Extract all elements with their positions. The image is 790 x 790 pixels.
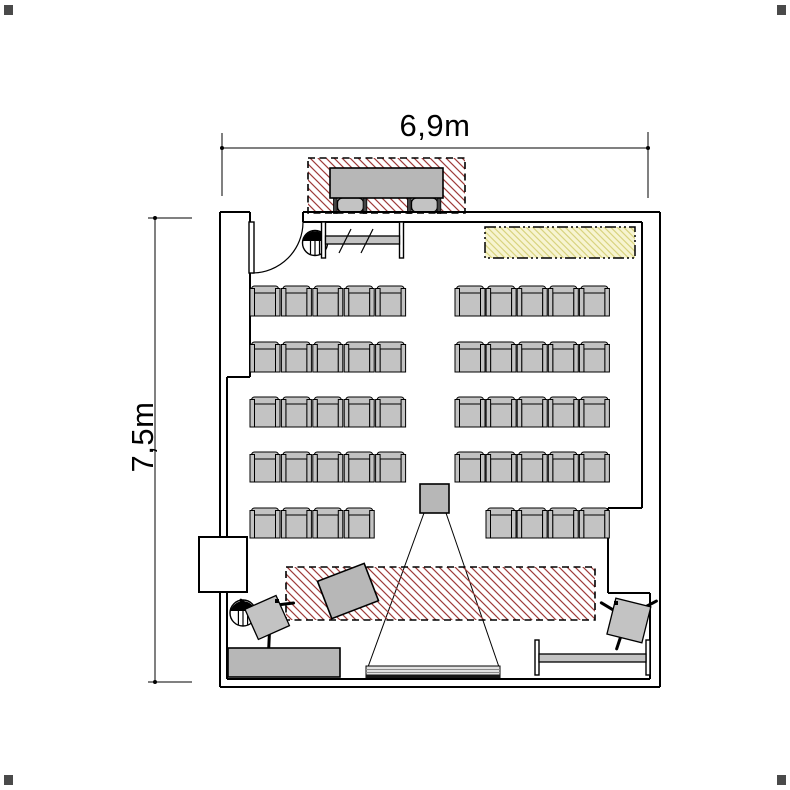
seat <box>313 452 343 482</box>
seat <box>548 286 578 316</box>
seat <box>344 508 374 538</box>
seat <box>548 342 578 372</box>
seat <box>455 286 485 316</box>
coat-rail <box>322 222 404 258</box>
seat <box>344 286 374 316</box>
seat <box>313 286 343 316</box>
seat <box>313 397 343 427</box>
seat <box>579 508 609 538</box>
seat <box>250 397 280 427</box>
seat <box>281 342 311 372</box>
seat <box>376 452 406 482</box>
seat <box>281 286 311 316</box>
entrance-door <box>249 222 303 273</box>
seat <box>548 508 578 538</box>
seat <box>455 342 485 372</box>
seat <box>344 397 374 427</box>
seat <box>548 397 578 427</box>
seat <box>344 452 374 482</box>
seat <box>376 286 406 316</box>
side-table <box>535 640 650 675</box>
seat <box>313 508 343 538</box>
seat <box>455 397 485 427</box>
seat <box>486 397 516 427</box>
side-marked-zone <box>485 227 635 258</box>
seat <box>250 286 280 316</box>
lecturer-table <box>330 168 443 198</box>
wall-pilaster <box>199 537 247 592</box>
seat <box>250 508 280 538</box>
door-leaf <box>249 222 254 273</box>
seat <box>579 397 609 427</box>
seat <box>486 342 516 372</box>
seat <box>250 342 280 372</box>
seat <box>250 452 280 482</box>
seat <box>281 397 311 427</box>
seat <box>486 452 516 482</box>
seat <box>313 342 343 372</box>
seat <box>344 342 374 372</box>
seat <box>579 452 609 482</box>
seat <box>517 452 547 482</box>
seat <box>281 452 311 482</box>
seat <box>517 342 547 372</box>
projection-screen <box>366 666 500 678</box>
sideboard-cabinet <box>228 648 340 677</box>
seat <box>517 286 547 316</box>
lecturer-chair <box>408 197 441 214</box>
seat <box>517 397 547 427</box>
seat <box>376 397 406 427</box>
dimension-label-height: 7,5m <box>125 387 161 487</box>
dimension-label-width: 6,9m <box>385 108 485 144</box>
seat <box>486 508 516 538</box>
seat <box>579 286 609 316</box>
seat <box>579 342 609 372</box>
overhead-projector <box>420 484 449 513</box>
seat <box>455 452 485 482</box>
seat <box>548 452 578 482</box>
floor-plan-page: 6,9m 7,5m <box>0 0 790 790</box>
door-swing-arc <box>252 222 303 273</box>
seat <box>376 342 406 372</box>
seat <box>517 508 547 538</box>
top-equipment-zone <box>308 158 465 214</box>
seat <box>486 286 516 316</box>
lecturer-chair <box>334 197 367 214</box>
seat <box>281 508 311 538</box>
